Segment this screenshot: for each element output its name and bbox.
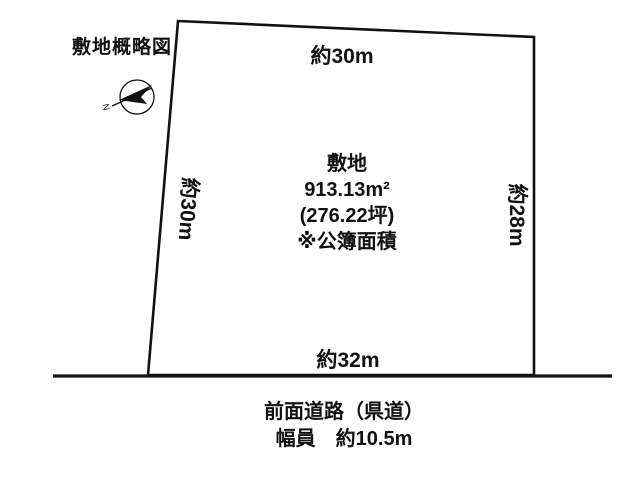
site-area-note: ※公簿面積 (197, 229, 497, 255)
diagram-title: 敷地概略図 (72, 32, 172, 59)
north-arrow-icon: N (101, 80, 154, 114)
site-area-m2: 913.13m² (197, 177, 497, 203)
site-plan: N 敷地概略図 約30m 約30m 約28m 約32m 敷地 913.13m² … (0, 0, 640, 480)
site-info: 敷地 913.13m² (276.22坪) ※公簿面積 (197, 151, 497, 255)
road-width: 幅員 約10.5m (194, 426, 494, 453)
dimension-bottom: 約32m (248, 344, 448, 374)
road-info: 前面道路（県道） 幅員 約10.5m (194, 399, 494, 453)
site-label: 敷地 (197, 151, 497, 177)
dimension-right: 約28m (503, 183, 533, 246)
site-area-tsubo: (276.22坪) (197, 203, 497, 229)
compass-n-label: N (101, 103, 112, 111)
road-name: 前面道路（県道） (194, 399, 494, 426)
dimension-top: 約30m (242, 40, 442, 70)
